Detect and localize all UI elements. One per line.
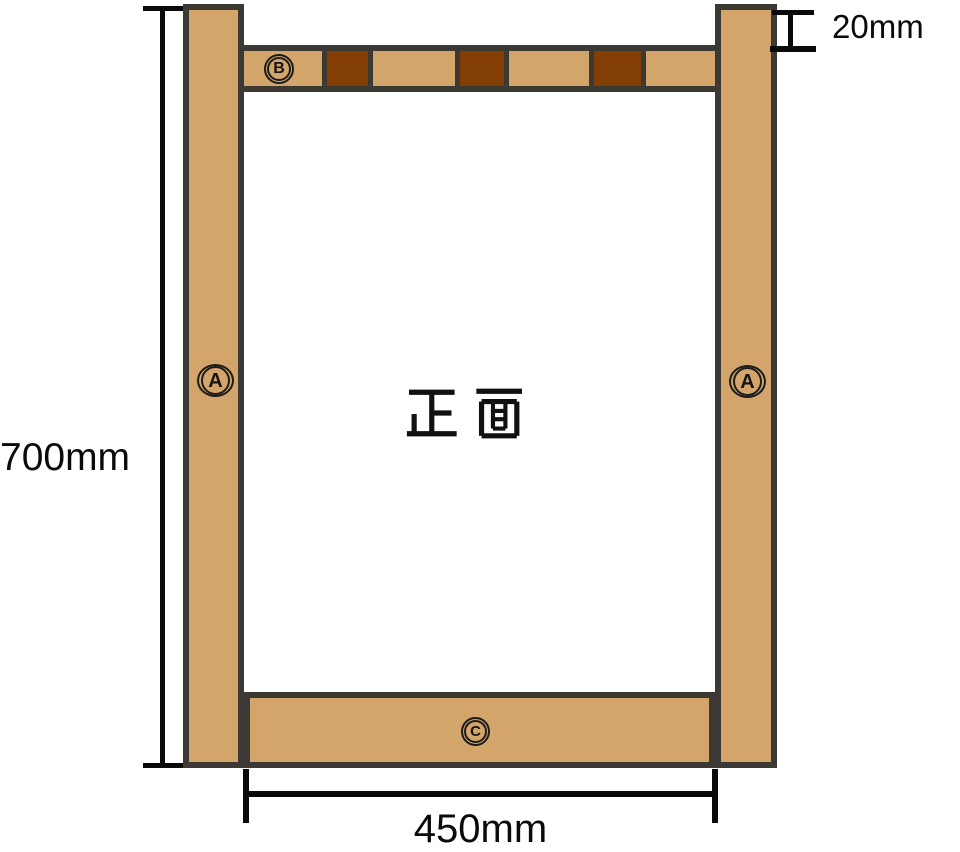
- width-dimension-label: 450mm: [243, 806, 718, 852]
- part-label-top-rail: B: [264, 54, 294, 84]
- part-label-right-post: A: [729, 365, 766, 398]
- part-label-left-post: A: [197, 364, 234, 397]
- top-rail-segment: [646, 51, 715, 86]
- height-dimension-label: 700mm: [0, 436, 130, 480]
- top-rail-segment: [509, 51, 590, 86]
- view-title-kanji: [404, 385, 528, 441]
- offset-dimension-tick-bottom: [770, 46, 816, 52]
- width-dimension-line: [243, 791, 718, 797]
- top-rail-segment: [327, 51, 368, 86]
- part-label-bottom-rail: C: [461, 717, 490, 746]
- height-dimension-tick-top: [143, 6, 187, 11]
- part-label-letter: A: [733, 367, 762, 396]
- top-rail-segment: [594, 51, 640, 86]
- offset-dimension-label: 20mm: [832, 8, 924, 46]
- top-rail-segment: [460, 51, 503, 86]
- offset-dimension-line: [788, 12, 793, 49]
- part-label-letter: C: [464, 720, 487, 743]
- front-view-diagram: 700mm B A A C: [0, 0, 960, 852]
- part-label-letter: B: [267, 57, 291, 81]
- part-label-letter: A: [201, 366, 230, 395]
- height-dimension-tick-bottom: [143, 763, 188, 768]
- top-rail-segment: [373, 51, 456, 86]
- top-rail: [244, 45, 715, 92]
- height-dimension-line: [160, 8, 165, 765]
- offset-dimension-tick-top: [772, 10, 814, 15]
